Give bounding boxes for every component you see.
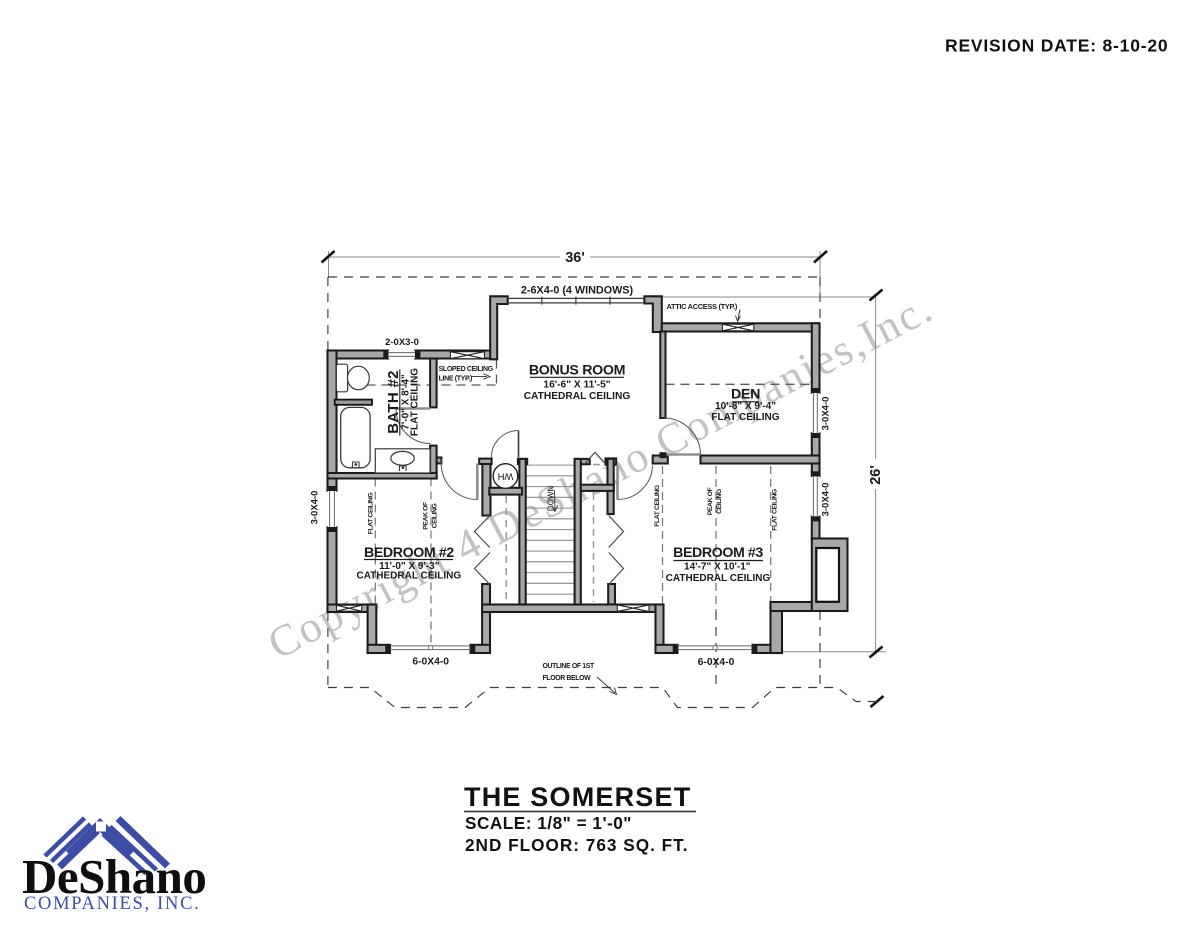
svg-text:CEILING: CEILING bbox=[716, 489, 723, 514]
svg-text:FLAT CEILING: FLAT CEILING bbox=[368, 493, 375, 535]
svg-text:CATHEDRAL CEILING: CATHEDRAL CEILING bbox=[524, 391, 631, 402]
svg-text:3-0X4-0: 3-0X4-0 bbox=[821, 483, 832, 517]
svg-text:3-0X4-0: 3-0X4-0 bbox=[310, 491, 321, 525]
svg-text:SLOPED CEILING: SLOPED CEILING bbox=[439, 366, 494, 373]
svg-text:FLAT CEILING: FLAT CEILING bbox=[711, 412, 779, 423]
svg-text:6-0X4-0: 6-0X4-0 bbox=[698, 657, 735, 668]
svg-text:16'-6" X 11'-5": 16'-6" X 11'-5" bbox=[543, 380, 610, 391]
svg-text:2-6X4-0 (4 WINDOWS): 2-6X4-0 (4 WINDOWS) bbox=[521, 285, 634, 297]
svg-text:COMPANIES, INC.: COMPANIES, INC. bbox=[24, 894, 200, 914]
svg-text:36': 36' bbox=[565, 250, 585, 266]
svg-text:10'-8" X 9'-4": 10'-8" X 9'-4" bbox=[715, 401, 776, 412]
svg-text:FLOOR BELOW: FLOOR BELOW bbox=[543, 675, 592, 682]
svg-text:CATHEDRAL CEILING: CATHEDRAL CEILING bbox=[666, 573, 771, 584]
svg-text:CATHEDRAL CEILING: CATHEDRAL CEILING bbox=[356, 571, 461, 582]
svg-text:SCALE: 1/8" = 1'-0": SCALE: 1/8" = 1'-0" bbox=[465, 813, 632, 833]
svg-text:ATTIC ACCESS (TYP.): ATTIC ACCESS (TYP.) bbox=[667, 302, 738, 311]
svg-text:3-0X4-0: 3-0X4-0 bbox=[821, 397, 832, 431]
svg-text:26': 26' bbox=[868, 465, 884, 485]
svg-text:THE SOMERSET: THE SOMERSET bbox=[464, 782, 691, 812]
svg-text:14'-7" X 10'-1": 14'-7" X 10'-1" bbox=[684, 562, 751, 573]
svg-text:OUTLINE OF 1ST: OUTLINE OF 1ST bbox=[543, 663, 596, 670]
svg-text:BEDROOM #3: BEDROOM #3 bbox=[673, 545, 763, 561]
svg-text:BEDROOM #2: BEDROOM #2 bbox=[364, 545, 454, 561]
svg-text:2-0X3-0: 2-0X3-0 bbox=[385, 337, 419, 348]
svg-text:2ND FLOOR: 763 SQ. FT.: 2ND FLOOR: 763 SQ. FT. bbox=[465, 835, 689, 855]
svg-text:LINE (TYP.): LINE (TYP.) bbox=[439, 376, 472, 383]
svg-text:6-0X4-0: 6-0X4-0 bbox=[412, 657, 449, 668]
svg-text:CEILING: CEILING bbox=[432, 504, 439, 529]
svg-text:WH: WH bbox=[497, 471, 513, 482]
svg-text:FLAT CEILING: FLAT CEILING bbox=[654, 485, 661, 527]
svg-text:BONUS ROOM: BONUS ROOM bbox=[529, 363, 625, 379]
svg-text:PEAK OF: PEAK OF bbox=[423, 502, 430, 530]
svg-text:FLAT CEILING: FLAT CEILING bbox=[410, 368, 421, 436]
svg-text:FLAT CEILING: FLAT CEILING bbox=[772, 489, 779, 531]
svg-text:PEAK OF: PEAK OF bbox=[707, 488, 714, 516]
svg-text:DOWN: DOWN bbox=[547, 486, 556, 512]
svg-text:REVISION DATE: 8-10-20: REVISION DATE: 8-10-20 bbox=[945, 36, 1168, 56]
